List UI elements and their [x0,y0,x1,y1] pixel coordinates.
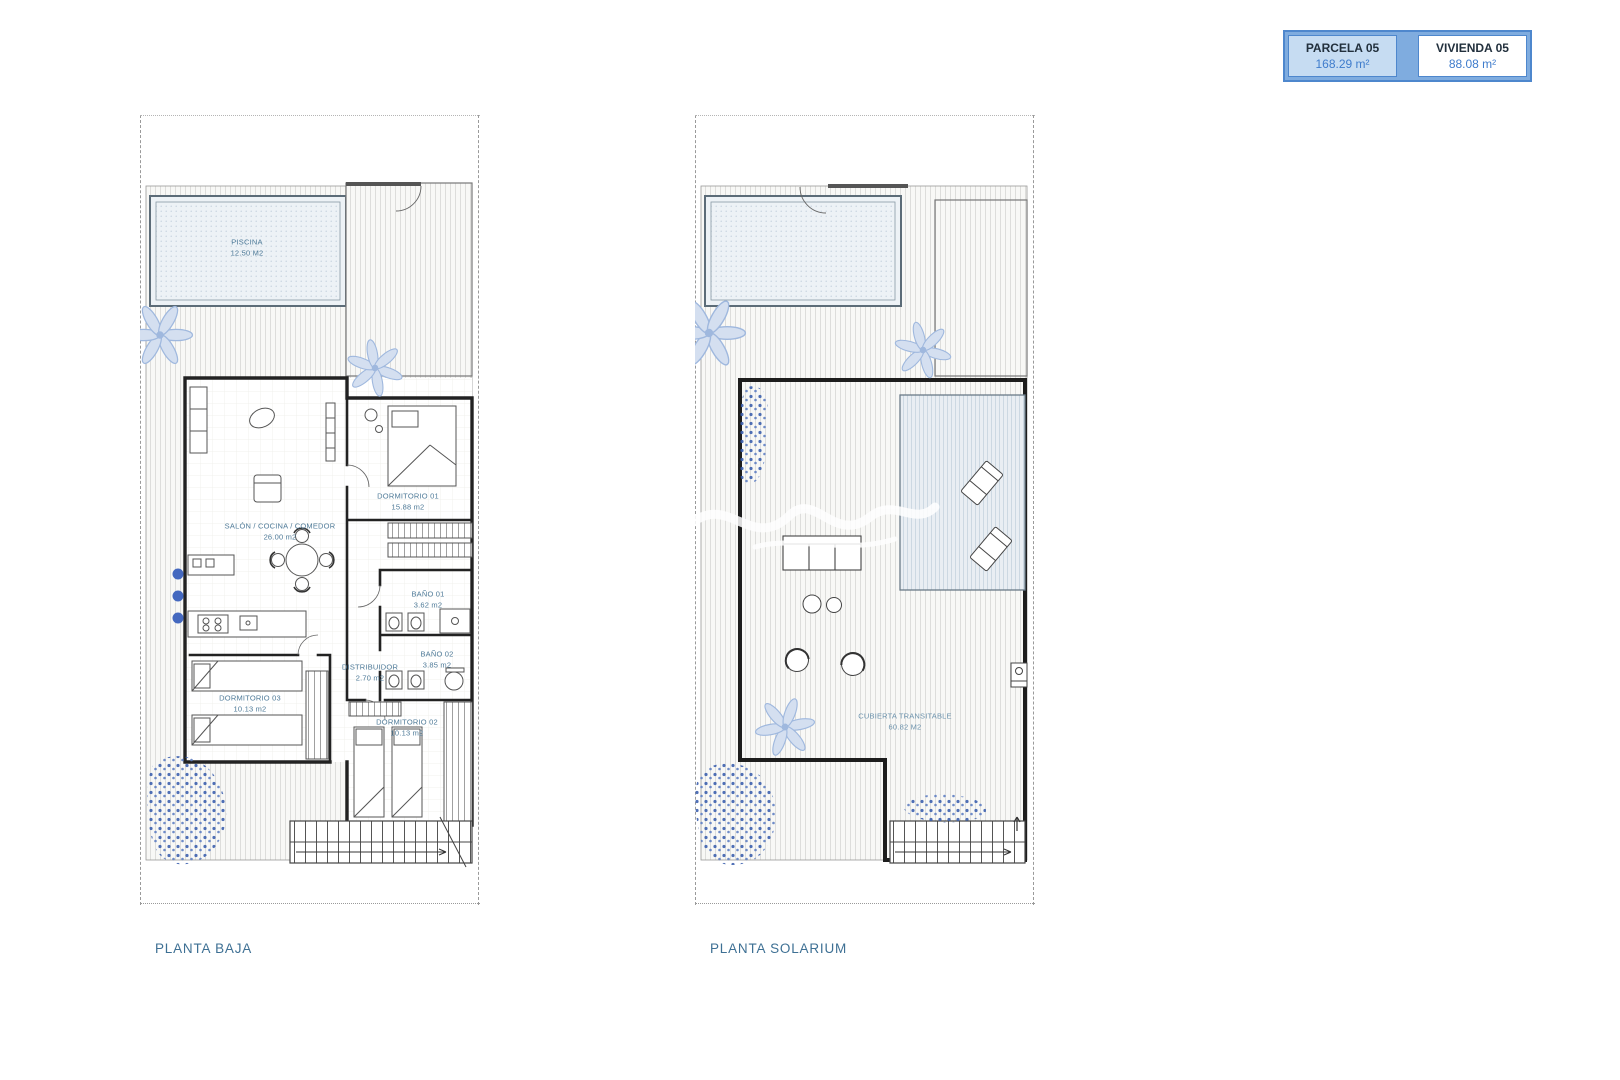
room-label-dormitorio1: DORMITORIO 01 15.88 m2 [377,492,439,513]
pouf [827,598,842,613]
room-label-cubierta: CUBIERTA TRANSITABLE 60.82 M2 [858,712,951,733]
pool [705,196,901,306]
parcela-area: 168.29 m² [1289,57,1396,71]
plan-title-planta-baja: PLANTA BAJA [155,941,252,956]
room-label-dormitorio3: DORMITORIO 03 10.13 m2 [219,694,281,715]
room-label-distribuidor: DISTRIBUIDOR 2.70 m2 [342,663,398,684]
kitchen-counter [188,611,306,637]
planta-solarium-drawing [695,115,1035,905]
parcela-label: PARCELA 05 [1289,41,1396,55]
covered-terrace [346,183,472,376]
pouf [803,595,821,613]
room-label-bano1: BAÑO 01 3.62 m2 [411,590,444,611]
area-summary-box: PARCELA 05 168.29 m² VIVIENDA 05 88.08 m… [1283,30,1532,82]
wardrobe [444,702,472,822]
room-label-dormitorio2: DORMITORIO 02 10.13 m2 [376,718,438,739]
entrance-stairs [290,817,472,867]
covered-terrace [935,200,1027,376]
entry-lintel [346,182,421,186]
stairs [890,817,1025,863]
entry-lintel [828,184,908,188]
closet [349,702,401,716]
room-label-bano2: BAÑO 02 3.85 m2 [420,650,453,671]
parcela-cell: PARCELA 05 168.29 m² [1288,35,1397,77]
vivienda-label: VIVIENDA 05 [1419,41,1526,55]
wall-unit [1011,663,1027,687]
vivienda-area: 88.08 m² [1419,57,1526,71]
wardrobe [306,671,328,759]
shelving [388,543,472,557]
room-label-piscina: PISCINA 12.50 M2 [231,238,264,259]
plan-title-planta-solarium: PLANTA SOLARIUM [710,941,847,956]
vivienda-cell: VIVIENDA 05 88.08 m² [1418,35,1527,77]
room-label-salon: SALÓN / COCINA / COMEDOR 26.00 m2 [225,522,336,543]
floor-plan-planta-solarium: CUBIERTA TRANSITABLE 60.82 M2 [695,115,1035,905]
floor-plan-planta-baja: PISCINA 12.50 M2 SALÓN / COCINA / COMEDO… [140,115,480,905]
wardrobe [388,523,472,538]
